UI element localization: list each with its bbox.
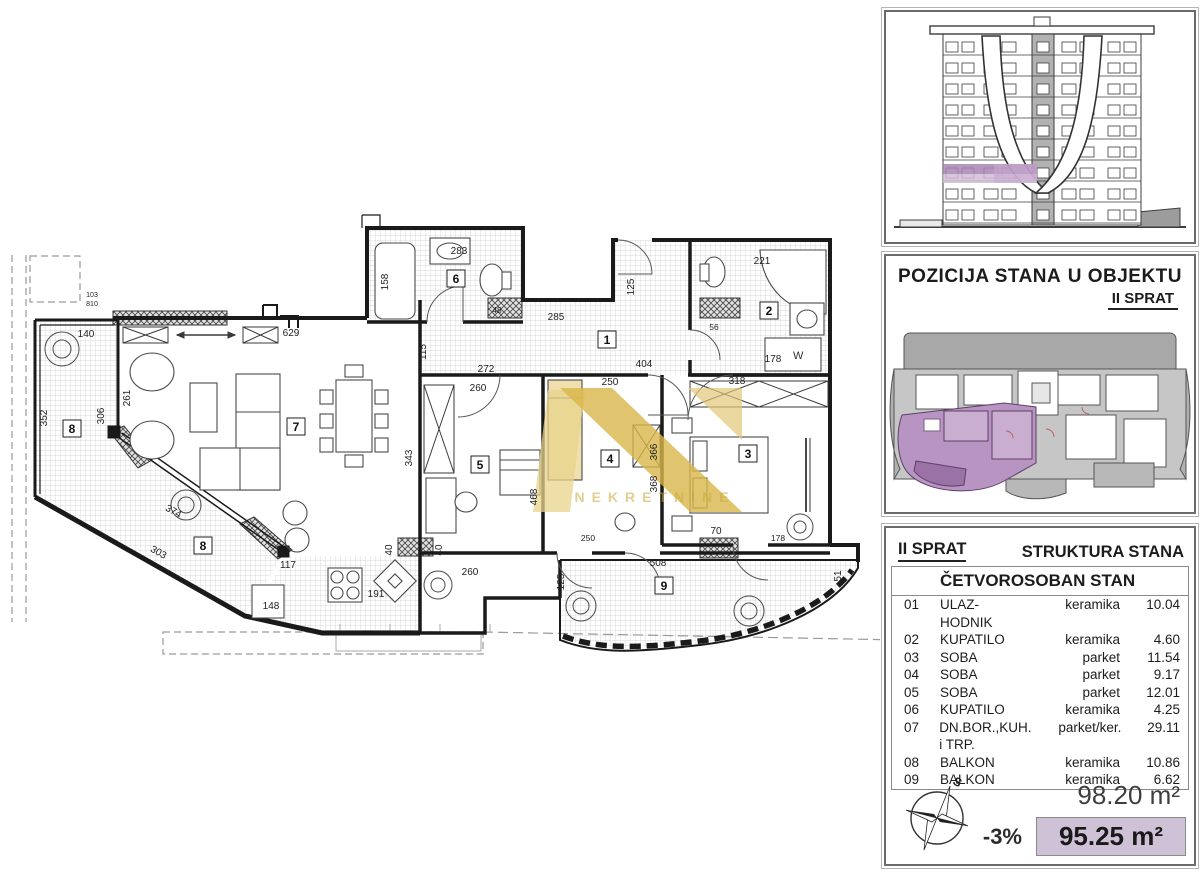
cell-material: parket xyxy=(1028,649,1120,667)
dim: 366 xyxy=(649,443,660,460)
dim: 103 xyxy=(86,292,98,299)
dim: 352 xyxy=(39,409,50,426)
cell-name: ULAZ-HODNIK xyxy=(940,596,1028,631)
table-row: 05SOBAparket12.01 xyxy=(892,684,1188,702)
dim: 283 xyxy=(451,246,468,257)
dim: 115 xyxy=(418,344,429,360)
dim: 125 xyxy=(626,278,637,295)
key-plan-drawing xyxy=(886,311,1194,507)
cell-name: SOBA xyxy=(940,666,1028,684)
area-reduction-value: -3% xyxy=(983,824,1022,850)
dim: 343 xyxy=(404,449,415,466)
dim: 285 xyxy=(548,312,565,323)
dim: 51 xyxy=(833,570,844,582)
dim: 40 xyxy=(384,544,395,556)
dim: 368 xyxy=(649,475,660,492)
dim: 306 xyxy=(96,407,107,424)
dim: 508 xyxy=(650,558,667,569)
dim: 125 xyxy=(556,573,567,590)
dim: 250 xyxy=(581,533,595,543)
dim: 48 xyxy=(492,305,502,315)
dim: 404 xyxy=(636,359,653,370)
room-label: 2 xyxy=(766,304,773,318)
dim: 148 xyxy=(263,601,280,612)
dim: 318 xyxy=(729,376,746,387)
room-label: 7 xyxy=(293,420,300,434)
room-label: 5 xyxy=(477,458,484,472)
apartment-type-label: ČETVOROSOBAN STAN xyxy=(892,567,1188,596)
dim: 260 xyxy=(462,567,479,578)
cell-material: keramika xyxy=(1028,596,1120,631)
gross-area-value: 98.20 m² xyxy=(983,780,1186,811)
structure-floor-label: II SPRAT xyxy=(898,540,966,562)
structure-table: ČETVOROSOBAN STAN 01ULAZ-HODNIKkeramika1… xyxy=(891,566,1189,790)
room-label: 1 xyxy=(604,333,611,347)
dim: 810 xyxy=(86,301,98,308)
apartment-structure-panel: II SPRAT STRUKTURA STANA ČETVOROSOBAN ST… xyxy=(884,526,1196,866)
floor-plan: NEKRETNINE 1 2 3 4 5 6 7 8 8 9 W 140 352… xyxy=(0,0,880,872)
room-label: 8 xyxy=(200,539,207,553)
cell-area: 12.01 xyxy=(1120,684,1180,702)
cell-num: 01 xyxy=(904,596,940,631)
table-row: 01ULAZ-HODNIKkeramika10.04 xyxy=(892,596,1188,631)
structure-table-body: 01ULAZ-HODNIKkeramika10.0402KUPATILOkera… xyxy=(892,596,1188,789)
table-row: 02KUPATILOkeramika4.60 xyxy=(892,631,1188,649)
dim: 629 xyxy=(283,328,300,339)
table-row: 06KUPATILOkeramika4.25 xyxy=(892,701,1188,719)
cell-material: keramika xyxy=(1028,701,1120,719)
dim: 468 xyxy=(529,488,540,505)
cell-num: 03 xyxy=(904,649,940,667)
cell-num: 02 xyxy=(904,631,940,649)
cell-area: 10.04 xyxy=(1120,596,1180,631)
dim: 40 xyxy=(434,544,445,556)
cell-name: DN.BOR.,KUH. i TRP. xyxy=(939,719,1031,754)
dim: 178 xyxy=(771,533,785,543)
cell-area: 11.54 xyxy=(1120,649,1180,667)
cell-name: SOBA xyxy=(940,649,1028,667)
room-label: 3 xyxy=(745,447,752,461)
dim: 140 xyxy=(78,329,95,340)
cell-area: 9.17 xyxy=(1120,666,1180,684)
room-label: 4 xyxy=(607,452,614,466)
cell-material: parket/ker. xyxy=(1031,719,1121,754)
cell-num: 04 xyxy=(904,666,940,684)
building-elevation-panel xyxy=(884,10,1196,244)
table-row: 03SOBAparket11.54 xyxy=(892,649,1188,667)
dim: 191 xyxy=(368,589,385,600)
cell-name: KUPATILO xyxy=(940,631,1028,649)
dim: 70 xyxy=(710,526,722,537)
room-label: 8 xyxy=(69,422,76,436)
cell-name: KUPATILO xyxy=(940,701,1028,719)
compass-label: S xyxy=(951,774,965,790)
dim: 117 xyxy=(280,560,296,571)
cell-area: 29.11 xyxy=(1121,719,1180,754)
structure-title: STRUKTURA STANA xyxy=(1022,543,1184,562)
cell-num: 06 xyxy=(904,701,940,719)
cell-material: parket xyxy=(1028,666,1120,684)
net-area-value: 95.25 m² xyxy=(1036,817,1186,856)
position-title-right: U OBJEKTU xyxy=(1068,266,1182,288)
area-summary: S 98.20 m² -3% 95.25 m² xyxy=(886,766,1194,858)
dim: 250 xyxy=(602,377,619,388)
position-floor-label: II SPRAT xyxy=(1108,290,1178,310)
elevation-floor-highlight xyxy=(943,164,1037,183)
dim: 260 xyxy=(470,383,487,394)
table-row: 07DN.BOR.,KUH. i TRP.parket/ker.29.11 xyxy=(892,719,1188,754)
dim: 158 xyxy=(380,273,391,290)
dim: 178 xyxy=(765,354,782,365)
position-title-left: POZICIJA STANA xyxy=(898,266,1061,288)
room-label: 6 xyxy=(453,272,460,286)
washer-label: W xyxy=(793,350,804,362)
cell-material: parket xyxy=(1028,684,1120,702)
room-label: 9 xyxy=(661,579,668,593)
cell-num: 05 xyxy=(904,684,940,702)
building-elevation-drawing xyxy=(886,12,1194,242)
table-row: 04SOBAparket9.17 xyxy=(892,666,1188,684)
compass-north-icon: S xyxy=(902,770,976,854)
cell-num: 07 xyxy=(904,719,939,754)
cell-name: SOBA xyxy=(940,684,1028,702)
cell-area: 4.25 xyxy=(1120,701,1180,719)
dim: 261 xyxy=(122,389,133,406)
dim: 221 xyxy=(754,256,771,267)
apartment-position-panel: POZICIJA STANA U OBJEKTU II SPRAT xyxy=(884,254,1196,514)
cell-material: keramika xyxy=(1028,631,1120,649)
cell-area: 4.60 xyxy=(1120,631,1180,649)
dim: 272 xyxy=(478,364,495,375)
dim: 56 xyxy=(709,322,719,332)
